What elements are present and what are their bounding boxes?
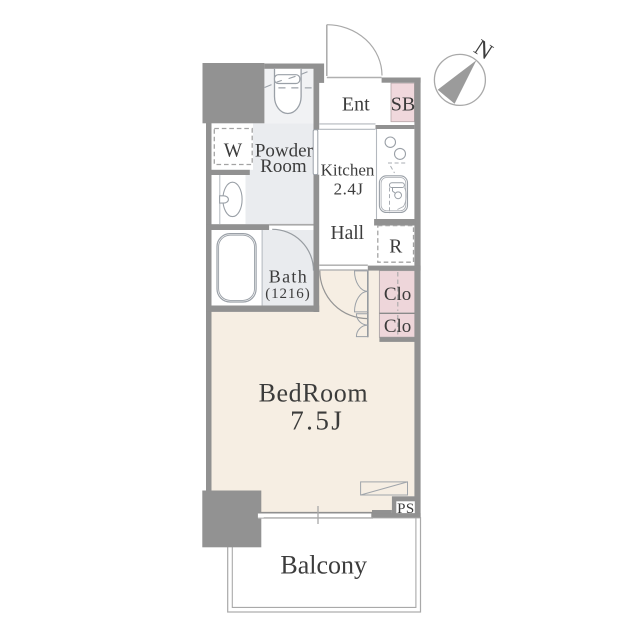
svg-text:(1216): (1216) [265,286,310,302]
svg-text:Hall: Hall [331,223,365,244]
svg-text:BedRoom: BedRoom [259,378,369,407]
svg-text:Balcony: Balcony [280,551,367,580]
svg-text:Clo: Clo [384,284,411,305]
svg-text:Room: Room [260,156,307,177]
svg-text:2.4J: 2.4J [334,179,364,198]
svg-text:PS: PS [397,501,415,517]
svg-text:R: R [389,237,402,258]
svg-text:W: W [224,140,243,161]
svg-text:SB: SB [391,93,415,115]
svg-text:Bath: Bath [269,267,308,287]
svg-text:Clo: Clo [384,316,411,337]
svg-text:7.5J: 7.5J [290,406,344,436]
svg-text:Ent: Ent [342,93,370,115]
svg-text:Kitchen: Kitchen [321,161,375,180]
